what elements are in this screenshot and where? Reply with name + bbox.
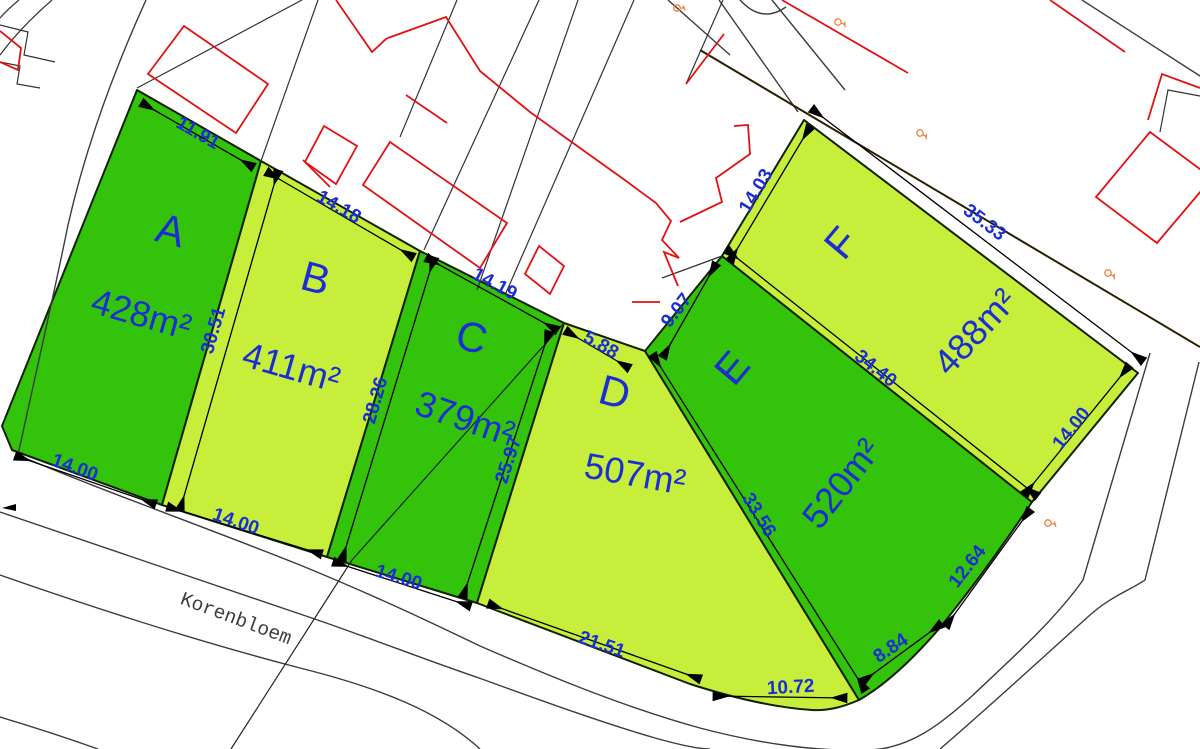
svg-text:10.72: 10.72 — [766, 676, 815, 699]
